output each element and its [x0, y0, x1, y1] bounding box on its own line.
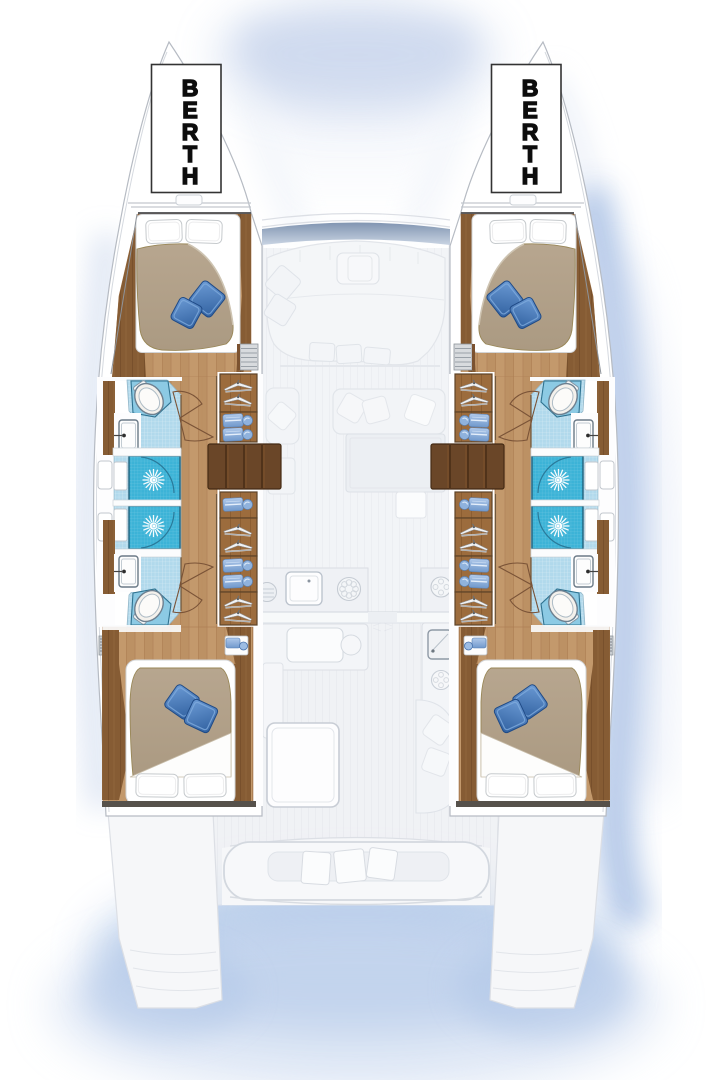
svg-text:H: H: [522, 163, 539, 189]
svg-text:H: H: [182, 163, 199, 189]
